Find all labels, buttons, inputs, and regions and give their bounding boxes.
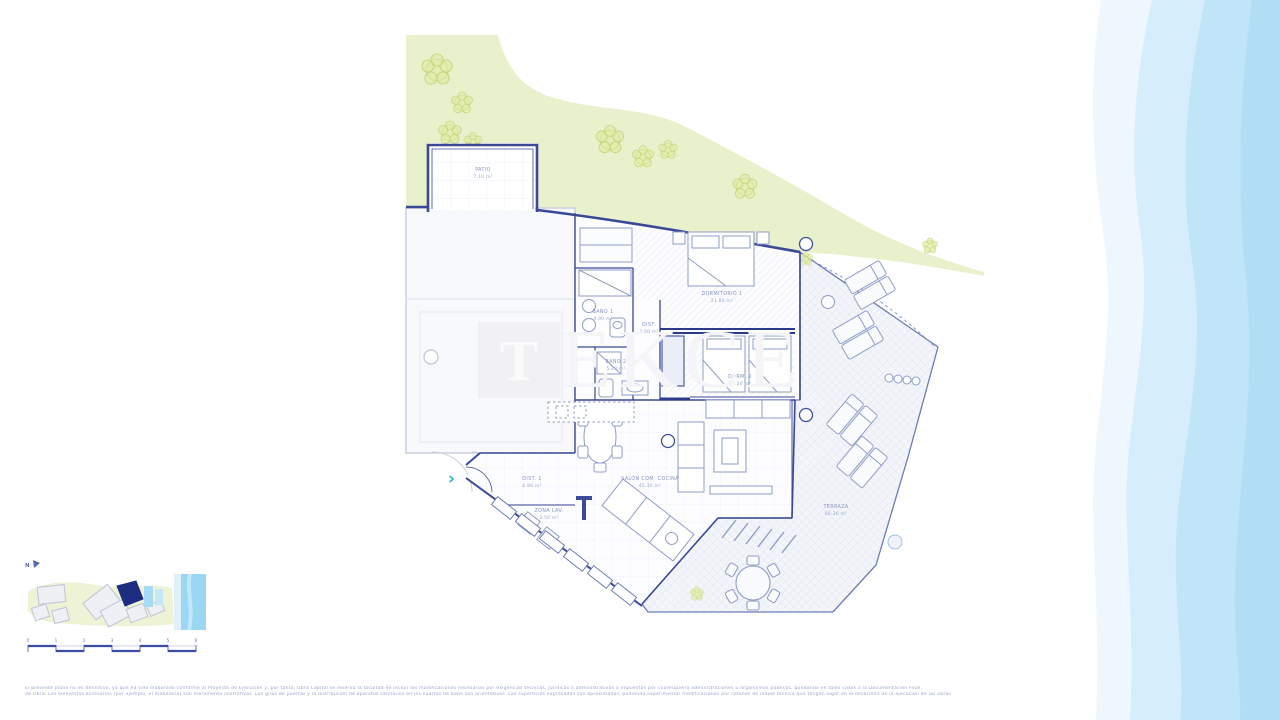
- scale-tick: 4: [139, 638, 142, 644]
- single-bed: [749, 336, 791, 392]
- room-area-dist1: 6.80 m²: [522, 483, 541, 489]
- room-area-terraza: 60.30 m²: [825, 511, 847, 517]
- room-label-bano2: BAÑO 2: [606, 358, 627, 365]
- room-label-bano1: BAÑO 1: [593, 308, 614, 315]
- toilet: [599, 379, 613, 397]
- scale-tick: 0: [27, 638, 30, 644]
- neighbour-unit: [406, 208, 575, 492]
- north-arrow: N: [25, 560, 40, 569]
- room-label-dormitorio1: DORMITORIO 1: [702, 291, 743, 297]
- room-area-zonalav: 3.50 m²: [539, 515, 558, 521]
- scale-tick: 6: [195, 638, 198, 644]
- keyplan-sea: [181, 574, 206, 630]
- scale-tick: 2: [83, 638, 86, 644]
- kitchen-counter: [548, 402, 634, 422]
- room-label-dist1: DIST. 1: [522, 476, 541, 482]
- wardrobe: [662, 336, 684, 386]
- room-area-bano2: 5.20 m²: [606, 366, 625, 372]
- side-table: [822, 296, 835, 309]
- room-area-dist: 2.00 m²: [639, 329, 658, 335]
- room-area-bano1: 4.90 m²: [593, 316, 612, 322]
- keyplan-shore: [174, 574, 181, 630]
- scale-bar: 0 1 2 3 4 5 6: [27, 638, 198, 652]
- room-label-dist: DIST.: [642, 322, 656, 328]
- scale-tick: 5: [167, 638, 170, 644]
- room-label-terraza: TERRAZA: [822, 504, 848, 510]
- site-keyplan: [28, 574, 206, 630]
- disclaimer-line-2: de Obra. Los elementos accesorios (por e…: [25, 692, 1065, 698]
- entrance-arrow-icon: ›: [448, 469, 455, 489]
- room-area-dormitorio1: 21.80 m²: [711, 298, 733, 304]
- room-label-dorm2: DORM. 2: [728, 374, 752, 380]
- room-area-patio: 7.10 m²: [473, 174, 492, 180]
- floorplan-page: › PATIO 7.10 m² DORMITORIO 1 21.80 m² BA…: [0, 0, 1280, 720]
- scale-tick: 1: [55, 638, 58, 644]
- room-label-patio: PATIO: [475, 167, 491, 173]
- tree-icon: [923, 238, 938, 253]
- north-arrow-icon: [33, 560, 40, 568]
- room-area-salon: 45.30 m²: [639, 483, 661, 489]
- north-label: N: [25, 563, 30, 569]
- room-area-dorm2: 13.20 m²: [729, 381, 751, 387]
- column: [424, 350, 438, 364]
- sea-water: [1093, 0, 1280, 720]
- planter-icon: [888, 535, 902, 549]
- room-label-zonalav: ZONA LAV.: [534, 508, 563, 514]
- room-label-salon: SALÓN COM. COCINA: [621, 475, 679, 482]
- tv-bench: [710, 486, 772, 494]
- floorplan-drawing: › PATIO 7.10 m² DORMITORIO 1 21.80 m² BA…: [0, 0, 1280, 720]
- round-table: [736, 566, 770, 600]
- scale-tick: 3: [111, 638, 114, 644]
